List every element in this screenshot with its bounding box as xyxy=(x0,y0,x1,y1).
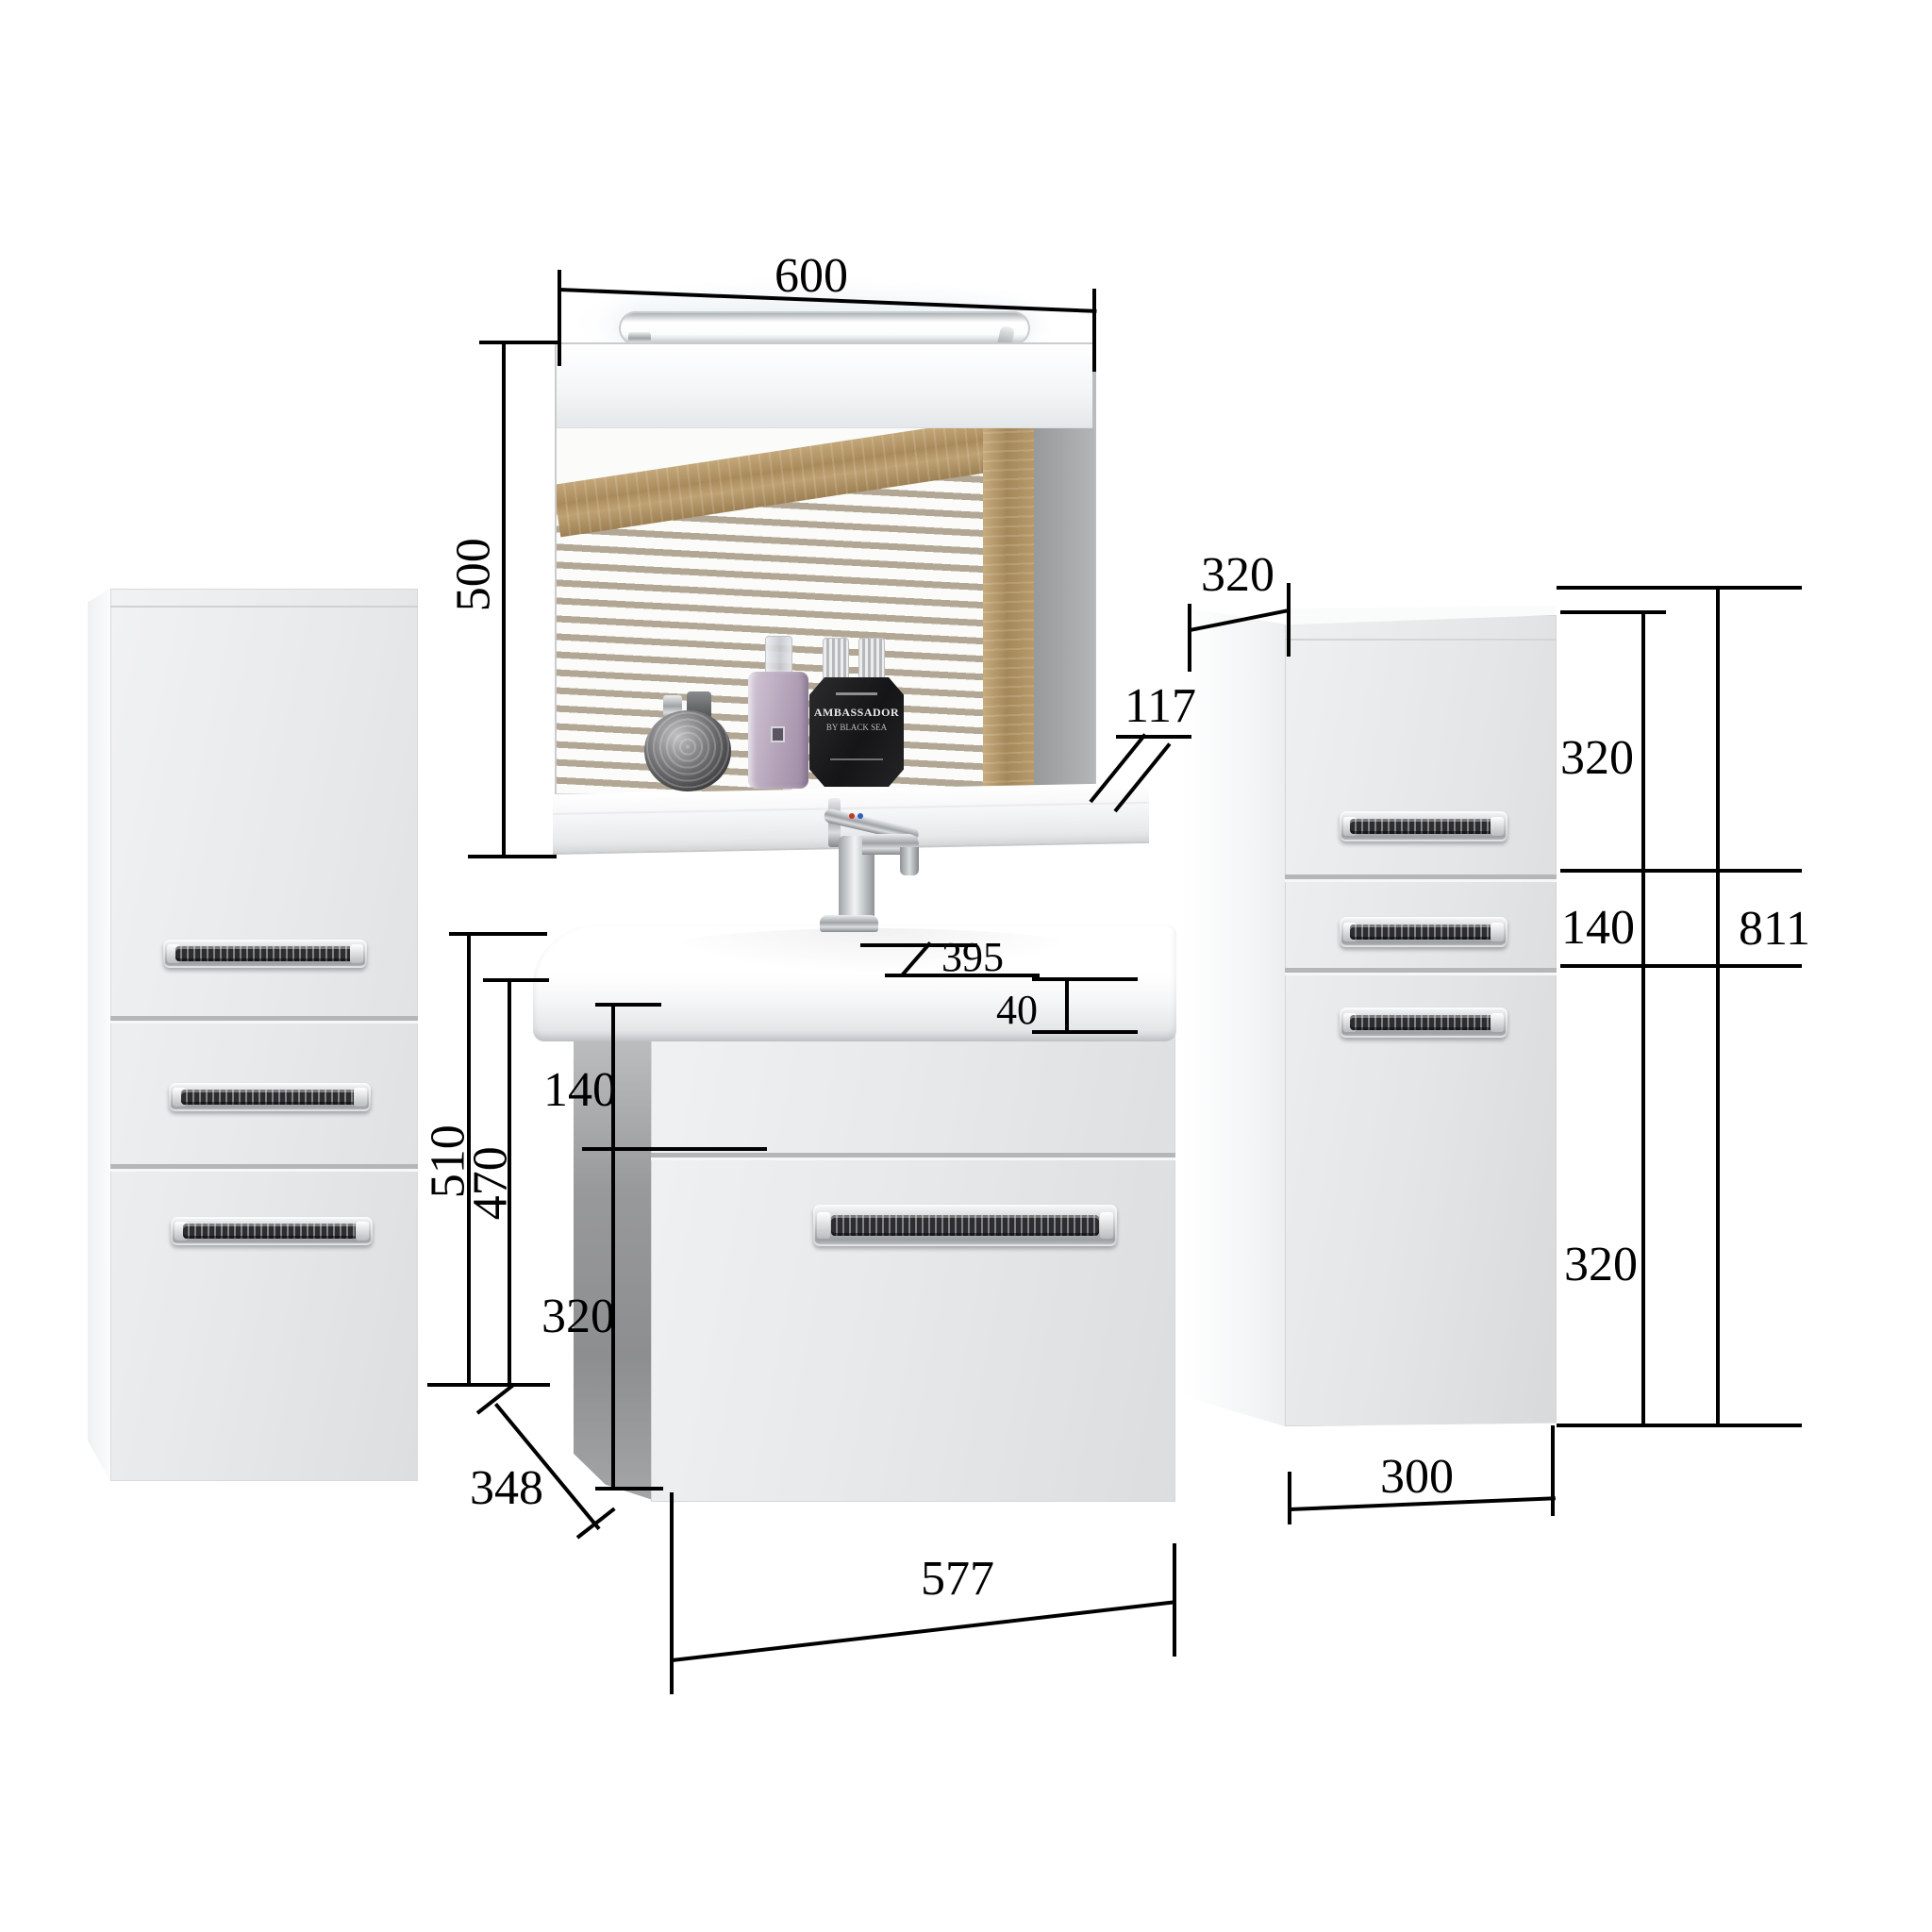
flask-brand: AMBASSADOR xyxy=(809,706,904,720)
dim-tick xyxy=(670,1492,674,1694)
right-cabinet-divider-highlight xyxy=(1285,973,1557,975)
dim-label-shelf-thickness: 117 xyxy=(1111,681,1209,733)
dim-label-right-total: 811 xyxy=(1731,904,1818,956)
flask-body: AMBASSADOR BY BLACK SEA xyxy=(809,677,904,787)
dim-tick xyxy=(1092,289,1096,372)
right-cabinet-front xyxy=(1285,615,1557,1426)
dim-tick xyxy=(1557,1424,1802,1427)
faucet-base xyxy=(820,915,878,932)
dim-label-vanity-depth: 348 xyxy=(458,1463,556,1515)
dim-label-basin-lip: 40 xyxy=(974,989,1060,1032)
black-perfume-flask: AMBASSADOR BY BLACK SEA xyxy=(809,638,904,787)
dim-tick xyxy=(558,270,561,366)
dim-tick xyxy=(1560,964,1802,968)
reflection-gray-band xyxy=(1034,428,1094,793)
handle-texture xyxy=(1350,819,1498,835)
reflection-wood-frame-side xyxy=(983,428,1036,793)
dim-tick xyxy=(468,855,557,858)
flask-cap-left xyxy=(823,638,849,683)
lavender-bottle-logo xyxy=(771,726,785,742)
handle-texture xyxy=(181,1090,358,1105)
dim-label-vanity-bottom-drawer: 320 xyxy=(537,1291,620,1343)
studded-sphere-bottle xyxy=(644,693,731,791)
dimension-diagram: AMBASSADOR BY BLACK SEA xyxy=(0,0,1932,1932)
dim-line xyxy=(672,1600,1176,1662)
dim-line xyxy=(1065,977,1069,1034)
dim-label-basin-depth: 395 xyxy=(941,936,1047,979)
flask-cap-right xyxy=(858,638,885,683)
left-cabinet-front xyxy=(110,589,418,1481)
flask-deco-line xyxy=(830,758,883,760)
dim-tick xyxy=(483,978,549,982)
flask-deco-line xyxy=(836,692,877,695)
faucet-cold-dot xyxy=(858,813,863,819)
handle-texture xyxy=(183,1224,360,1239)
left-cabinet-bottom-handle[interactable] xyxy=(171,1217,373,1245)
dim-tick xyxy=(1287,583,1291,657)
dim-tick xyxy=(582,1147,767,1151)
dim-tick xyxy=(1288,1472,1291,1524)
left-cabinet-divider-highlight xyxy=(110,1021,418,1024)
right-cabinet-door-handle[interactable] xyxy=(1340,811,1507,841)
dim-tick xyxy=(476,1383,516,1415)
dim-line xyxy=(1116,735,1191,739)
dim-line xyxy=(502,342,506,858)
right-cabinet-top-edge-line xyxy=(1285,639,1557,641)
dim-tick xyxy=(449,932,547,936)
faucet-spout-tip xyxy=(900,847,919,875)
flask-subtitle: BY BLACK SEA xyxy=(809,723,904,732)
dim-line xyxy=(1716,588,1720,1427)
dim-tick xyxy=(1551,1425,1555,1516)
ceramic-washbasin xyxy=(533,924,1176,1041)
left-cabinet-drawer-handle[interactable] xyxy=(169,1083,371,1111)
dim-label-mirror-height: 500 xyxy=(449,518,501,631)
dim-label-right-bottom: 320 xyxy=(1557,1240,1644,1291)
dim-tick xyxy=(1188,604,1191,672)
dim-tick xyxy=(1560,610,1666,614)
dim-tick xyxy=(1560,869,1802,873)
dim-tick xyxy=(595,1003,661,1007)
handle-texture xyxy=(831,1215,1098,1237)
dim-label-mirror-width: 600 xyxy=(750,251,873,303)
handle-texture xyxy=(175,946,355,961)
handle-texture xyxy=(1350,924,1498,941)
dim-label-right-depth: 320 xyxy=(1191,550,1285,602)
right-cabinet-drawer-handle[interactable] xyxy=(1340,917,1507,947)
dim-tick xyxy=(595,1487,663,1491)
dim-label-vanity-width: 577 xyxy=(901,1554,1014,1606)
dim-label-right-width: 300 xyxy=(1365,1452,1469,1504)
faucet-hot-dot xyxy=(849,813,855,819)
right-cabinet-bottom-handle[interactable] xyxy=(1340,1008,1507,1038)
left-cabinet-top-edge-line xyxy=(110,606,418,608)
mirror-top-band xyxy=(557,344,1092,428)
dim-tick xyxy=(1173,1543,1176,1657)
dim-tick xyxy=(427,1383,550,1387)
dim-label-right-top: 320 xyxy=(1554,733,1641,785)
dim-label-vanity-body-height: 470 xyxy=(466,1126,518,1240)
dim-tick xyxy=(1557,586,1802,590)
right-cabinet-divider-highlight xyxy=(1285,879,1557,882)
dim-tick xyxy=(1032,977,1138,981)
sphere-bottle-body xyxy=(644,710,731,791)
vanity-drawer-divider-highlight xyxy=(651,1158,1175,1160)
left-cabinet-divider-highlight xyxy=(110,1169,418,1172)
dim-label-vanity-top-drawer: 140 xyxy=(540,1065,621,1117)
vanity-drawer-handle[interactable] xyxy=(813,1205,1117,1246)
lavender-perfume-bottle xyxy=(748,636,808,789)
vanity-front xyxy=(651,998,1175,1502)
dim-label-right-mid: 140 xyxy=(1555,903,1641,955)
light-bar xyxy=(619,311,1030,345)
handle-texture xyxy=(1350,1015,1498,1031)
left-cabinet-side-panel xyxy=(88,587,110,1483)
dim-line xyxy=(1641,612,1645,1425)
left-cabinet-door-handle[interactable] xyxy=(163,940,367,968)
dim-tick xyxy=(479,341,558,344)
